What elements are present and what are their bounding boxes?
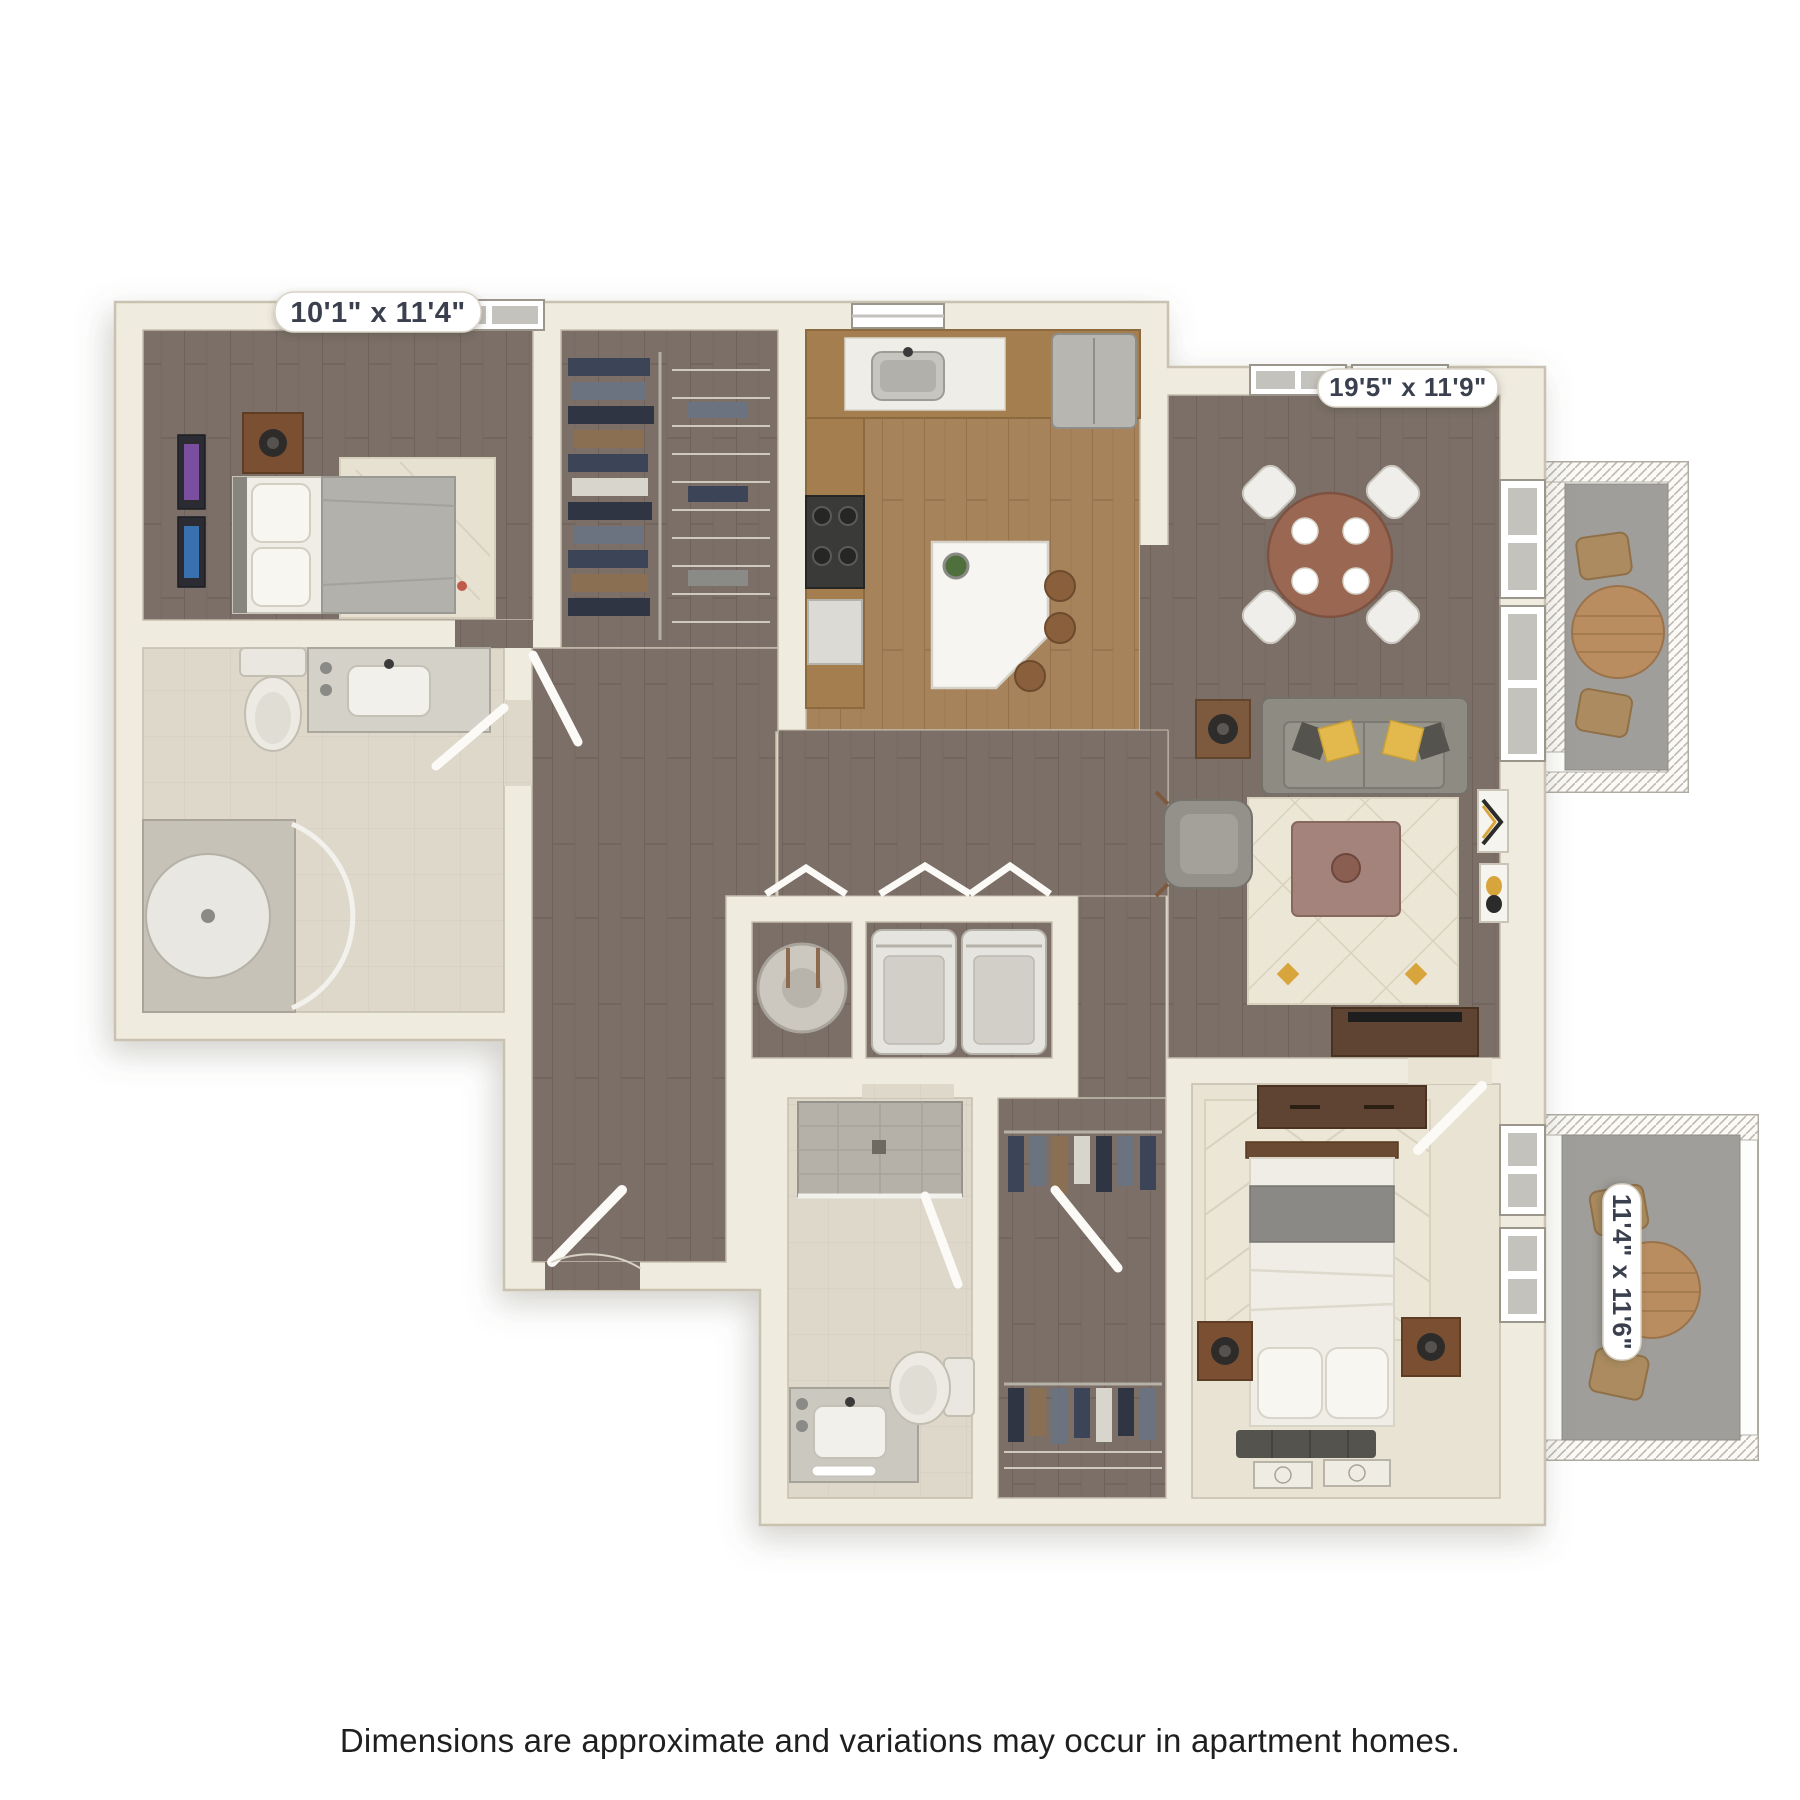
bedroom2-foot-rug [1236, 1430, 1376, 1458]
dining-table [1268, 493, 1392, 617]
floor-plan-rendering: 10'1" x 11'4" 19'5" x 11'9" 11'4" x 11'6… [0, 0, 1800, 1800]
island-stool [1015, 661, 1045, 691]
bedroom2-dresser [1258, 1086, 1426, 1128]
disclaimer-text: Dimensions are approximate and variation… [0, 1722, 1800, 1760]
bedroom2-nightstand [1198, 1322, 1252, 1380]
kitchen-sink [872, 347, 944, 400]
sofa-pillow-yellow [1382, 720, 1423, 761]
dryer [962, 930, 1046, 1054]
island-stool [1045, 571, 1075, 601]
bedroom1-doorway [455, 620, 533, 648]
dimension-label-bedroom2: 11'4" x 11'6" [1607, 1194, 1637, 1350]
island-stool [1045, 613, 1075, 643]
bathroom2-shower [798, 1102, 962, 1196]
bathroom1-vanity [308, 648, 490, 732]
balcony-living-chair [1575, 688, 1634, 738]
coffee-table [1292, 822, 1400, 916]
living-room-side-window [1500, 480, 1545, 761]
washer [872, 930, 956, 1054]
dimension-label-bedroom1: 10'1" x 11'4" [290, 297, 465, 329]
dimension-label-living: 19'5" x 11'9" [1329, 372, 1487, 402]
passage-floor [778, 730, 1168, 896]
kitchen-fridge [1052, 334, 1136, 428]
kitchen-living-junction-floor [1140, 545, 1170, 731]
balcony-living-chair [1575, 532, 1632, 581]
island-plant [944, 554, 968, 578]
kitchen-pass-through [852, 304, 944, 328]
kitchen-stove [806, 496, 864, 588]
floor-plan-page: 10'1" x 11'4" 19'5" x 11'9" 11'4" x 11'6… [0, 0, 1800, 1800]
balcony-bedroom2 [1545, 1115, 1758, 1460]
accent-chair [1156, 792, 1252, 896]
bathroom1-toilet [240, 648, 306, 751]
bathroom2-toilet [890, 1352, 974, 1424]
side-table [1196, 700, 1250, 758]
tv [1348, 1012, 1462, 1022]
closet2-hanging-clothes-bottom [1008, 1388, 1156, 1444]
sofa [1262, 698, 1468, 794]
bedroom1-nightstand [243, 413, 303, 473]
balcony-living [1545, 462, 1688, 792]
dimension-label-bedroom2-pill: 11'4" x 11'6" [1603, 1184, 1641, 1360]
tv-console [1332, 1008, 1478, 1056]
closet1-hanging-clothes [568, 358, 654, 616]
bathroom1-doorway [504, 700, 532, 786]
kitchen-dishwasher [808, 600, 862, 664]
dimension-label-living-pill: 19'5" x 11'9" [1318, 369, 1498, 407]
bathroom2-doorway [862, 1084, 954, 1098]
bedroom1-bed [233, 477, 455, 613]
water-heater [758, 944, 846, 1032]
bedroom2-nightstand [1402, 1318, 1460, 1376]
bedroom2-doorway [1408, 1058, 1492, 1084]
dimension-label-bedroom1-pill: 10'1" x 11'4" [275, 292, 481, 332]
balcony-living-table [1572, 586, 1664, 678]
bedroom2-bed [1246, 1142, 1398, 1426]
entry-doorway [545, 1262, 640, 1290]
corridor-floor [1078, 896, 1166, 1098]
